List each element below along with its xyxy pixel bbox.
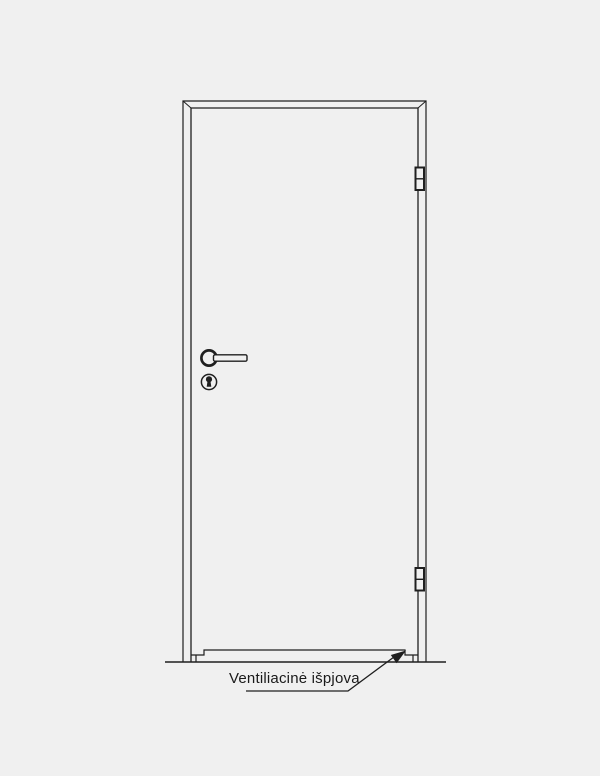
ventilation-cutout-label: Ventiliacinė išpjova xyxy=(229,669,360,689)
keyhole-slot xyxy=(207,381,212,387)
ventilation-cutout xyxy=(191,650,418,662)
handle-lever xyxy=(214,355,248,361)
door-frame-outer xyxy=(183,101,426,662)
keyhole-icon xyxy=(201,374,216,389)
miter-joint-right xyxy=(418,101,426,108)
miter-joint-left xyxy=(183,101,191,108)
ventilation-cutout-edge xyxy=(191,650,418,655)
hinge-bottom-icon xyxy=(416,568,425,591)
door-leaf-edge xyxy=(191,108,418,662)
door-technical-drawing xyxy=(0,0,600,776)
door-drawing-canvas: Ventiliacinė išpjova xyxy=(0,0,600,776)
hinge-top-icon xyxy=(416,168,425,191)
lever-handle-icon xyxy=(201,350,247,365)
